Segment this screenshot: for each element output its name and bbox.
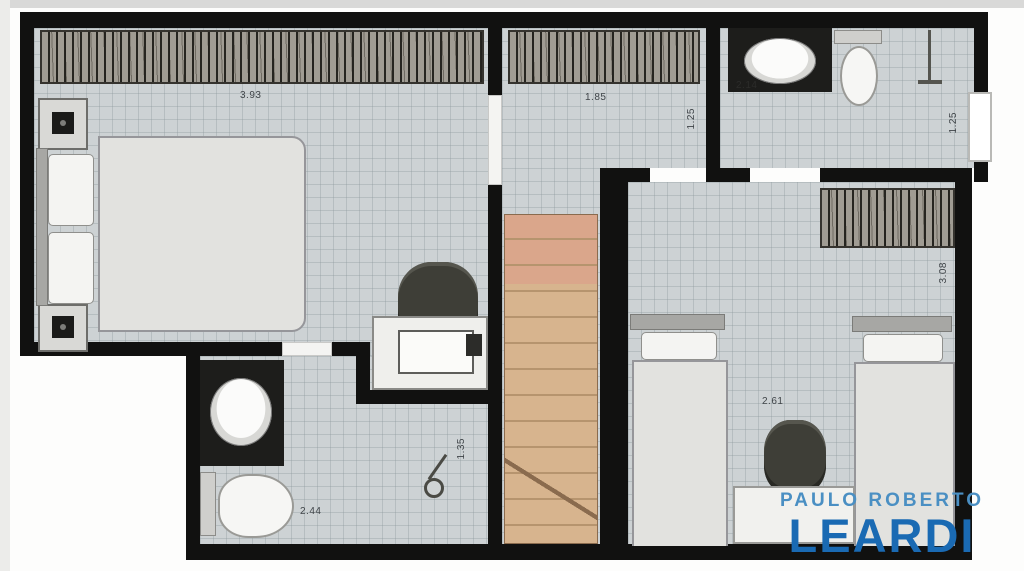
toilet-icon <box>218 474 294 538</box>
wall-bathtop-bottom-a <box>628 168 650 182</box>
brand-logo: PAULO ROBERTO LEARDI <box>748 491 1016 559</box>
wall-nook-left <box>356 356 370 390</box>
staircase <box>504 214 598 544</box>
wall-bathbottom-left <box>186 356 200 558</box>
dim-hall-depth: 1.25 <box>686 108 697 129</box>
wall-top <box>20 12 988 28</box>
image-border-left <box>0 0 10 571</box>
wall-bathtop-bottom-b <box>716 168 750 182</box>
lamp-icon <box>52 316 74 338</box>
dim-bathtop-depth: 1.25 <box>948 112 959 133</box>
door-master <box>488 95 502 185</box>
door-master-to-bath <box>282 342 332 356</box>
wall-stair-right <box>600 168 628 558</box>
sink-icon <box>210 378 272 446</box>
dim-hall-width: 1.85 <box>585 92 606 103</box>
pillow <box>863 334 943 362</box>
toilet-tank <box>834 30 882 44</box>
window-bathtop <box>968 92 992 162</box>
wall-hall-right <box>706 12 720 182</box>
single-bed-left-duvet <box>632 360 728 546</box>
shower-handle <box>918 80 942 84</box>
shower-icon <box>928 30 931 82</box>
pillow <box>48 232 94 304</box>
wall-master-bottom-b <box>332 342 370 356</box>
logo-line2: LEARDI <box>748 512 1016 559</box>
wall-master-right <box>488 12 502 558</box>
pillow <box>48 154 94 226</box>
shower-head-icon <box>424 478 444 498</box>
single-bed-right-headboard <box>852 316 952 332</box>
dim-bathbottom-width: 2.44 <box>300 506 321 517</box>
master-wardrobe <box>40 30 484 84</box>
desk-object <box>466 334 482 356</box>
wall-bathtop-bottom-c <box>820 168 962 182</box>
toilet-tank <box>200 472 216 536</box>
double-bed-headboard <box>36 148 48 306</box>
single-bed-left-headboard <box>630 314 725 330</box>
floor-plan-canvas: 3.93 3.06 1.85 1.25 2.14 1.25 3.08 2.61 … <box>0 0 1024 571</box>
wall-left <box>20 12 34 356</box>
bedroom2-wardrobe <box>820 188 955 248</box>
hall-wardrobe <box>508 30 700 84</box>
image-border-top <box>0 0 1024 8</box>
logo-line1: PAULO ROBERTO <box>748 491 1016 510</box>
dim-bedroom2-depth: 3.08 <box>938 262 949 283</box>
dim-master-width: 3.93 <box>240 90 261 101</box>
dim-bathtop-width: 2.14 <box>736 80 757 91</box>
sink-icon <box>744 38 816 84</box>
wall-nook-bottom <box>356 390 502 404</box>
bedroom2-chair <box>764 420 826 494</box>
laptop-icon <box>398 330 474 374</box>
dim-bedroom2-width: 2.61 <box>762 396 783 407</box>
toilet-icon <box>840 46 878 106</box>
lamp-icon <box>52 112 74 134</box>
pillow <box>641 332 717 360</box>
double-bed-duvet <box>98 136 306 332</box>
dim-bathbottom-depth: 1.35 <box>456 438 467 459</box>
